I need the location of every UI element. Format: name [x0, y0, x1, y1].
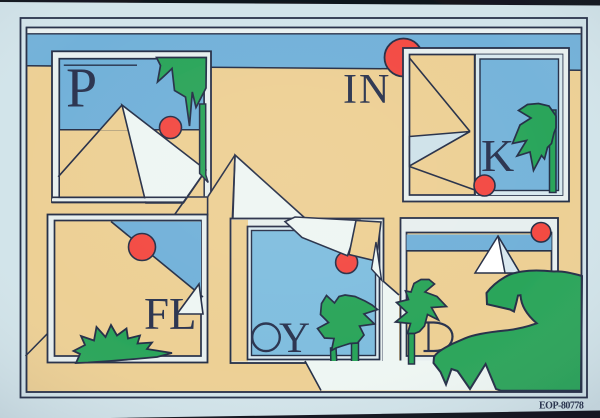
svg-text:EOP-80778: EOP-80778 — [539, 401, 584, 412]
